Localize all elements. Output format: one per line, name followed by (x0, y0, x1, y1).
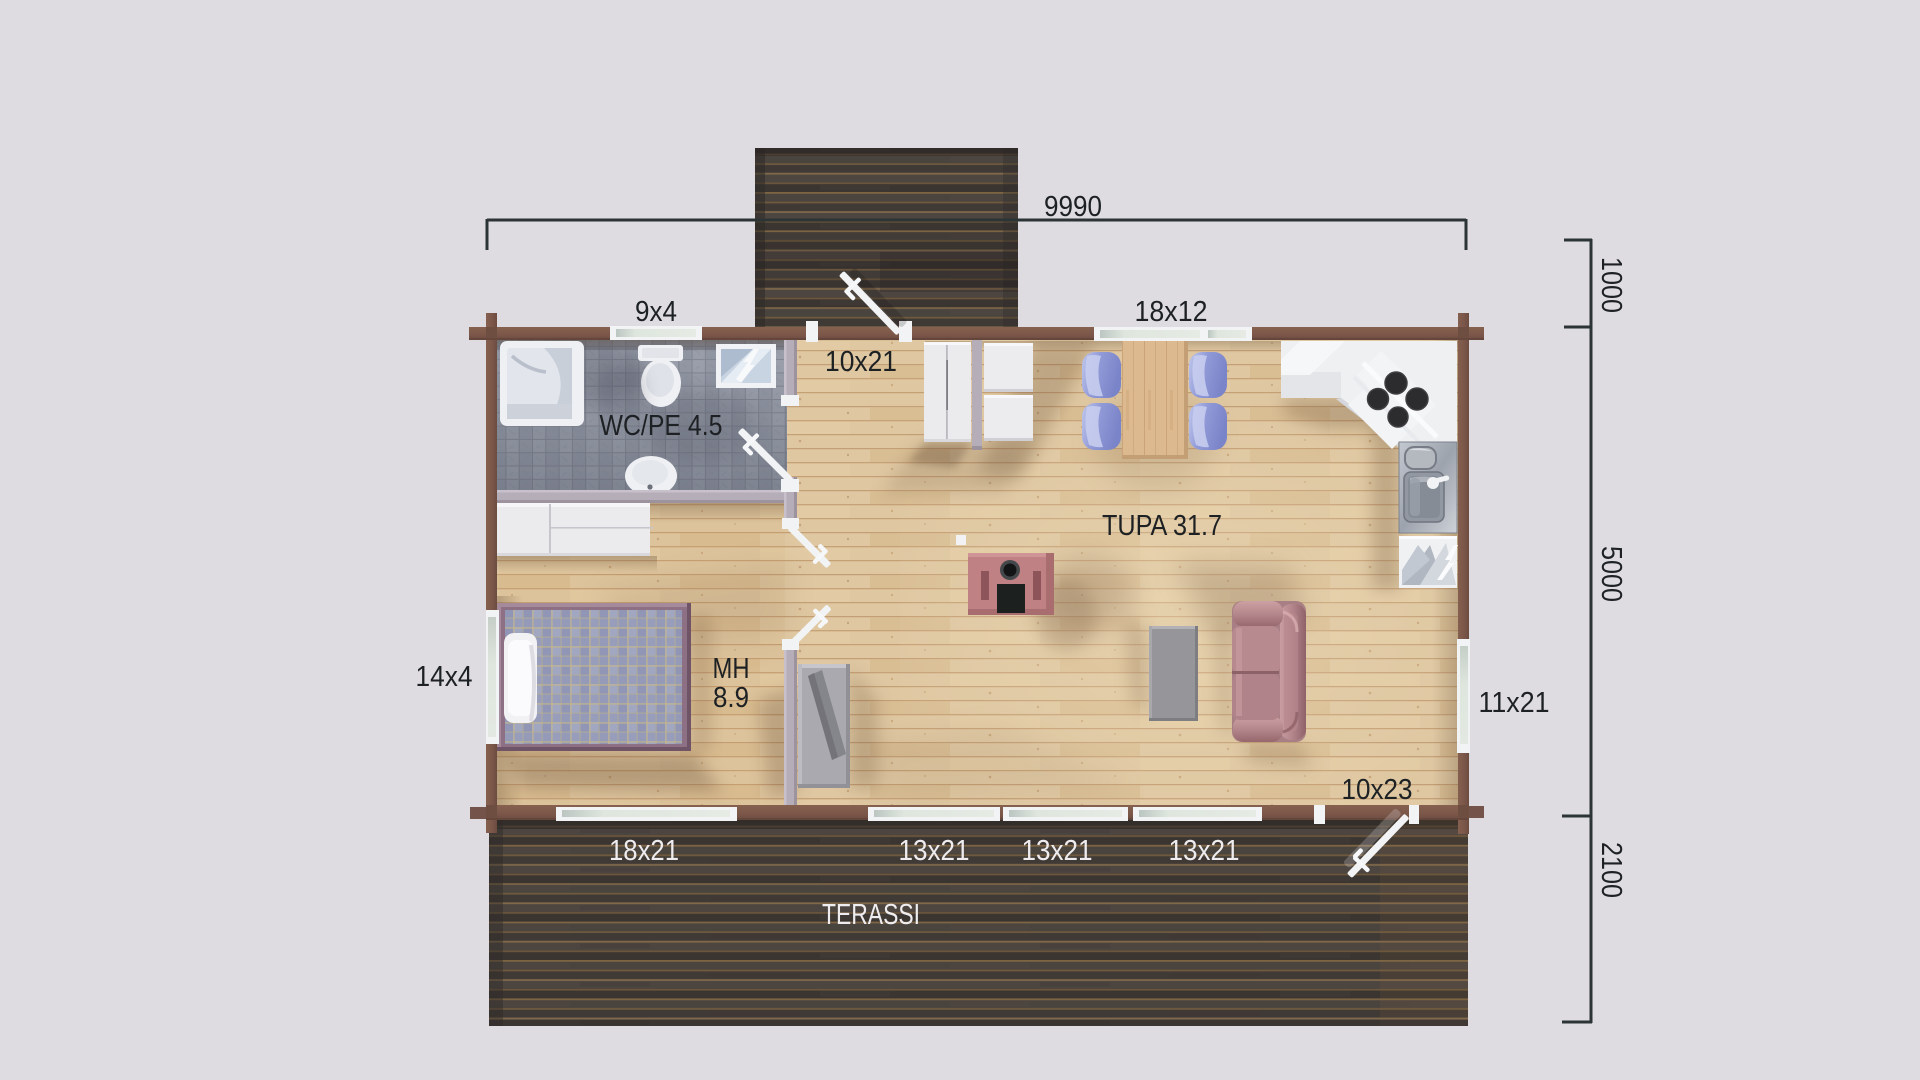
svg-text:5000: 5000 (1595, 546, 1627, 602)
svg-text:2100: 2100 (1595, 842, 1627, 898)
svg-text:18x21: 18x21 (609, 835, 679, 867)
svg-text:9990: 9990 (1044, 191, 1102, 223)
svg-text:TERASSI: TERASSI (822, 899, 920, 931)
svg-text:1000: 1000 (1595, 257, 1627, 313)
svg-text:10x23: 10x23 (1342, 774, 1413, 806)
svg-text:TUPA 31.7: TUPA 31.7 (1102, 510, 1222, 542)
svg-text:10x21: 10x21 (825, 346, 897, 378)
svg-text:11x21: 11x21 (1479, 687, 1550, 719)
svg-text:18x12: 18x12 (1135, 296, 1208, 328)
svg-text:13x21: 13x21 (1169, 835, 1240, 867)
svg-text:8.9: 8.9 (713, 682, 749, 714)
svg-text:9x4: 9x4 (635, 296, 677, 328)
svg-text:14x4: 14x4 (416, 661, 473, 693)
svg-text:13x21: 13x21 (1022, 835, 1093, 867)
svg-text:WC/PE 4.5: WC/PE 4.5 (600, 410, 723, 442)
svg-text:13x21: 13x21 (899, 835, 970, 867)
svg-text:MH: MH (713, 653, 750, 685)
